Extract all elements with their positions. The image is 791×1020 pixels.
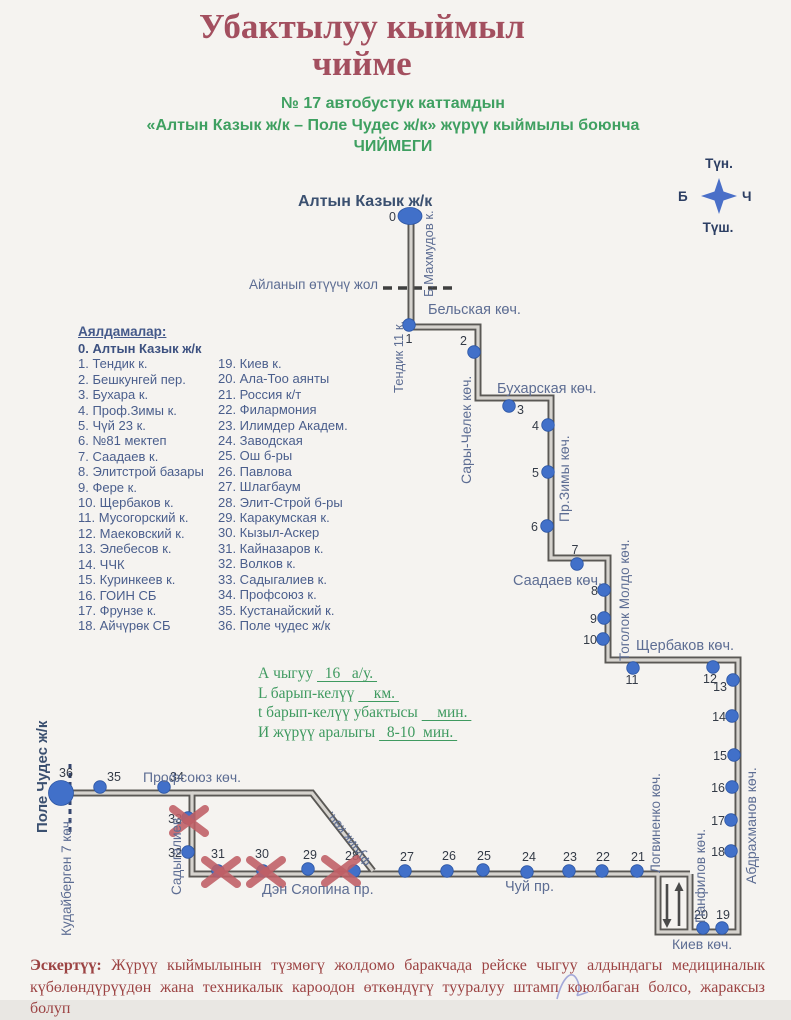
stop-number-4: 4 [532, 419, 539, 433]
document-page: Убактылуу кыймыл чийме № 17 автобустук к… [0, 0, 791, 1000]
stop-dot-3 [503, 400, 516, 413]
stop-number-29: 29 [303, 848, 317, 862]
legend-item: 4. Проф.Зимы к. [78, 403, 204, 418]
stop-dot-35 [94, 781, 107, 794]
stop-number-14: 14 [712, 710, 726, 724]
legend-item: 30. Кызыл-Аскер [218, 525, 348, 540]
stop-dot-4 [542, 419, 555, 432]
stop-dot-10 [597, 633, 610, 646]
legend-item: 21. Россия к/т [218, 387, 348, 402]
street-label: Киев көч. [672, 936, 732, 952]
stop-number-11: 11 [626, 673, 639, 687]
street-label: Поле Чудес ж/к [34, 720, 51, 833]
street-label: Пр.Зимы көч. [556, 435, 572, 522]
legend-item: 7. Саадаев к. [78, 449, 204, 464]
legend-item: 36. Поле чудес ж/к [218, 618, 348, 633]
stop-number-3: 3 [517, 403, 524, 417]
stop-number-31: 31 [211, 847, 225, 861]
stop-number-2: 2 [460, 334, 467, 348]
street-label: Кудайберген 7 көч. [59, 818, 74, 937]
stop-number-36: 36 [59, 766, 73, 780]
stats-line: И жүрүү аралыгы 8-10 мин. [258, 723, 471, 743]
legend-item: 22. Филармония [218, 402, 348, 417]
stop-number-7: 7 [572, 543, 579, 557]
street-label: Дэн Сяопина пр. [262, 882, 374, 898]
stop-dot-15 [728, 749, 741, 762]
stop-number-30: 30 [255, 847, 269, 861]
street-label: Сары-Челек көч. [458, 376, 474, 484]
stop-number-18: 18 [711, 845, 725, 859]
stats-line: А чыгуу 16 а/у. [258, 664, 471, 684]
stop-dot-9 [598, 612, 611, 625]
stop-number-5: 5 [532, 466, 539, 480]
stop-number-22: 22 [596, 850, 610, 864]
stop-number-13: 13 [713, 680, 727, 694]
stop-dot-22 [596, 865, 609, 878]
stop-dot-21 [631, 865, 644, 878]
legend-item: 11. Мусогорский к. [78, 510, 204, 525]
legend-item: 12. Маековский к. [78, 526, 204, 541]
street-label: Бухарская көч. [497, 381, 597, 397]
stop-number-27: 27 [400, 850, 414, 864]
legend-item: 9. Фере к. [78, 480, 204, 495]
stop-dot-23 [563, 865, 576, 878]
legend-item: 29. Каракумская к. [218, 510, 348, 525]
street-label: Абдрахманов көч. [743, 767, 759, 884]
stop-number-0: 0 [389, 210, 396, 224]
stop-dot-16 [726, 781, 739, 794]
stop-dot-27 [399, 865, 412, 878]
stop-number-1: 1 [406, 332, 413, 346]
stop-dot-26 [441, 865, 454, 878]
legend-item: 8. Элитстрой базары [78, 464, 204, 479]
legend-item: 6. №81 мектеп [78, 433, 204, 448]
street-label: Б.Махмудов к. [421, 210, 436, 297]
legend-item: 1. Тендик к. [78, 356, 204, 371]
stop-number-10: 10 [583, 633, 597, 647]
legend-item: 20. Ала-Тоо аянты [218, 371, 348, 386]
stop-number-19: 19 [716, 908, 730, 922]
stop-number-21: 21 [631, 850, 645, 864]
street-label: Логвиненко көч. [648, 773, 663, 873]
legend-item: 23. Илимдер Академ. [218, 418, 348, 433]
stats-line: L барып-келүү км. [258, 684, 471, 704]
stop-dot-7 [571, 558, 584, 571]
legend-item: 34. Профсоюз к. [218, 587, 348, 602]
stop-number-23: 23 [563, 850, 577, 864]
stop-dot-14 [726, 710, 739, 723]
street-label: Панфилов көч. [693, 829, 708, 923]
stop-number-16: 16 [711, 781, 725, 795]
legend-item: 24. Заводская [218, 433, 348, 448]
legend-item: 32. Волков к. [218, 556, 348, 571]
stop-dot-5 [542, 466, 555, 479]
legend-item: 14. ЧЧК [78, 557, 204, 572]
arrow-head [663, 919, 672, 928]
legend-item: 5. Чүй 23 к. [78, 418, 204, 433]
legend-item: 31. Кайназаров к. [218, 541, 348, 556]
legend-item: 0. Алтын Казык ж/к [78, 341, 204, 356]
legend-col2: 19. Киев к.20. Ала-Тоо аянты21. Россия к… [218, 356, 348, 633]
legend-item: 27. Шлагбаум [218, 479, 348, 494]
legend-item: 17. Фрунзе к. [78, 603, 204, 618]
legend-item: 3. Бухара к. [78, 387, 204, 402]
street-label: Тоголок Молдо көч. [617, 539, 632, 661]
stop-dot-13 [727, 674, 740, 687]
stop-number-26: 26 [442, 849, 456, 863]
legend-item: 25. Ош б-ры [218, 448, 348, 463]
stop-number-24: 24 [522, 850, 536, 864]
stop-number-6: 6 [531, 520, 538, 534]
stop-number-35: 35 [107, 770, 121, 784]
note-label: Эскертүү: [30, 957, 102, 974]
stop-dot-18 [725, 845, 738, 858]
legend-item: 35. Кустанайский к. [218, 603, 348, 618]
stop-dot-36 [49, 781, 74, 806]
stop-dot-25 [477, 864, 490, 877]
street-label: Саадаев көч. [513, 573, 602, 589]
street-label: Профсоюз көч. [143, 769, 241, 785]
legend-item: 33. Садыгалиев к. [218, 572, 348, 587]
stop-number-9: 9 [590, 612, 597, 626]
legend-item: 15. Куринкеев к. [78, 572, 204, 587]
legend-item: 18. Айчүрөк СБ [78, 618, 204, 633]
stop-dot-19 [716, 922, 729, 935]
street-label: Садыгалиев [169, 818, 184, 895]
legend-item: 10. Щербаков к. [78, 495, 204, 510]
street-label: Айланып өтүүчү жол [249, 277, 378, 292]
footer-note: Эскертүү: Жүрүү кыймылынын түзмөгү жолдо… [30, 955, 765, 1020]
stop-dot-29 [302, 863, 315, 876]
street-label: Бельская көч. [428, 302, 521, 318]
street-label: Тендик 11 к. [391, 321, 406, 393]
stop-dot-2 [468, 346, 481, 359]
stop-number-15: 15 [713, 749, 727, 763]
legend-item: 13. Элебесов к. [78, 541, 204, 556]
legend-col1: 0. Алтын Казык ж/к1. Тендик к.2. Бешкунг… [78, 341, 204, 634]
street-label: Алтын Казык ж/к [298, 193, 433, 210]
street-label: Щербаков көч. [636, 638, 734, 654]
stop-number-17: 17 [711, 814, 725, 828]
stop-dot-17 [725, 814, 738, 827]
note-text: Жүрүү кыймылынын түзмөгү жолдомо баракча… [30, 957, 765, 1017]
street-label: Чуй пр. [505, 879, 554, 895]
stop-number-25: 25 [477, 849, 491, 863]
stop-dot-24 [521, 866, 534, 879]
legend-heading: Аялдамалар: [78, 324, 166, 339]
legend-item: 19. Киев к. [218, 356, 348, 371]
legend-item: 16. ГОИН СБ [78, 588, 204, 603]
stop-dot-0 [398, 208, 422, 225]
legend-item: 28. Элит-Строй б-ры [218, 495, 348, 510]
stop-dot-6 [541, 520, 554, 533]
arrow-head [675, 882, 684, 891]
legend-item: 2. Бешкунгей пер. [78, 372, 204, 387]
stats-line: t барып-келүү убактысы мин. [258, 703, 471, 723]
legend-item: 26. Павлова [218, 464, 348, 479]
route-stats: А чыгуу 16 а/у. L барып-келүү км. t бары… [258, 664, 471, 742]
